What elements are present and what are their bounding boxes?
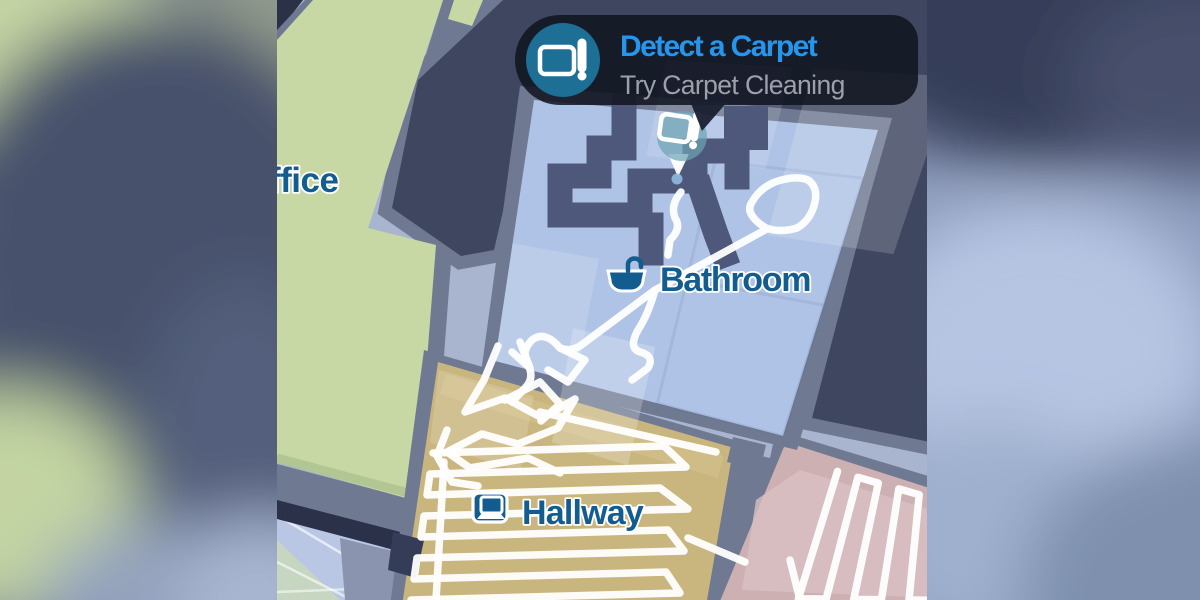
svg-text:Detect a Carpet: Detect a Carpet (620, 30, 818, 63)
svg-text:ffice: ffice (269, 161, 339, 200)
svg-text:Try Carpet Cleaning: Try Carpet Cleaning (620, 70, 845, 100)
svg-text:Bathroom: Bathroom (660, 261, 810, 299)
svg-text:Hallway: Hallway (522, 494, 644, 532)
